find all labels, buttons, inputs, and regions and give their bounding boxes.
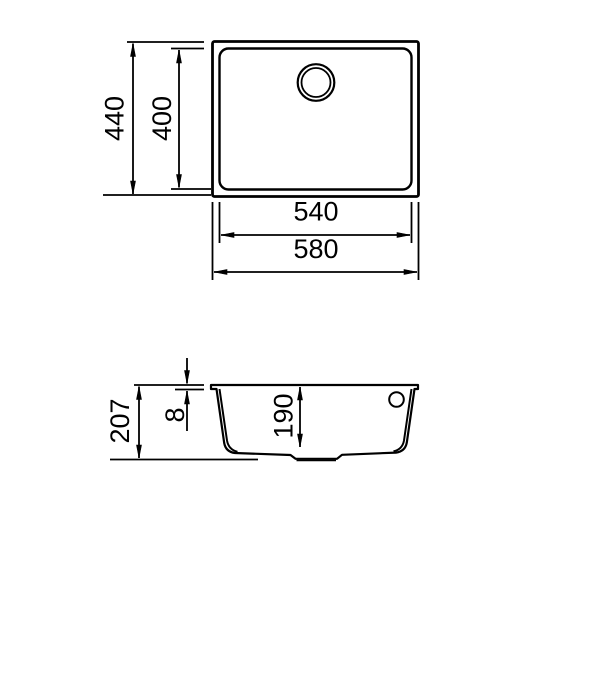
dimension-bowl-depth: 400 (147, 49, 211, 190)
sink-dimension-drawing: 440 400 540 580 (0, 0, 600, 689)
technical-drawing-page: 440 400 540 580 (0, 0, 600, 689)
dimension-label-8: 8 (160, 407, 190, 422)
dimension-label-207: 207 (105, 398, 135, 443)
dimension-label-580: 580 (293, 234, 338, 264)
side-view: 207 8 190 (105, 358, 418, 460)
dimension-label-400: 400 (147, 96, 177, 141)
dimension-label-190: 190 (269, 393, 299, 438)
dimension-label-540: 540 (293, 197, 338, 227)
bowl-shell-outline (211, 385, 418, 459)
top-view: 440 400 540 580 (100, 42, 419, 281)
dimension-bowl-inner-depth: 190 (269, 387, 300, 447)
dimension-label-440: 440 (100, 96, 130, 141)
dimension-rim-thickness: 8 (160, 358, 204, 431)
